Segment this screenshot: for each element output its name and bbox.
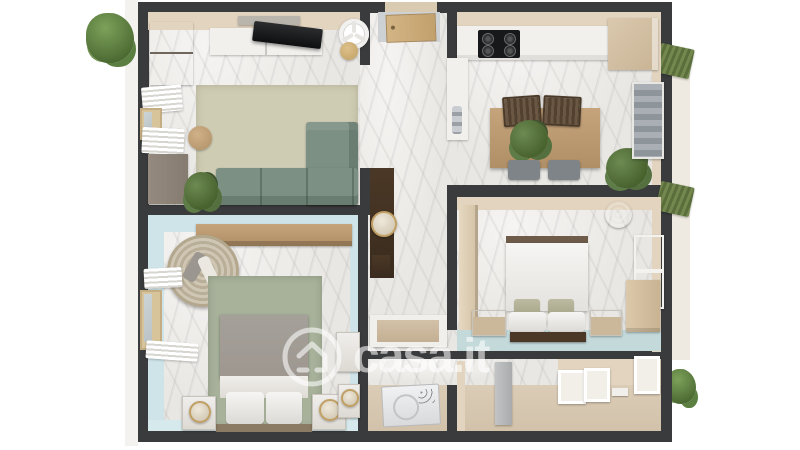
fan-blade [342, 33, 354, 42]
leaning-frame-2 [584, 368, 610, 402]
shrub-top-left [86, 13, 134, 63]
outer-wall-bottom [138, 431, 672, 442]
bed-right-pillow-2 [548, 312, 585, 332]
corridor-partition-face [457, 361, 465, 431]
bedroom-left-dresser [336, 332, 360, 372]
corridor-alcove-partition [495, 362, 512, 425]
living-plant [184, 172, 218, 210]
bed-left-duvet [220, 315, 308, 379]
entry-door [386, 13, 437, 43]
dining-stool-left [508, 160, 540, 180]
table-centerpiece-plant [510, 120, 548, 158]
dining-stool-right [548, 160, 580, 180]
bed-left-pillow-2 [266, 392, 302, 424]
bedroom-right-corner-wardrobe [626, 280, 660, 332]
vanity-mirror [341, 389, 359, 407]
bedroom-right-nightstand-right [590, 310, 622, 336]
round-side-table [188, 126, 212, 150]
burner [504, 33, 516, 45]
burner [482, 33, 494, 45]
woven-pendant [605, 201, 632, 228]
door-handle [391, 26, 395, 30]
bedroom-right-nightstand-left [472, 310, 506, 336]
wall-hall-bedroom-right [447, 188, 457, 330]
bed-right-bench [510, 332, 586, 342]
washing-machine [381, 384, 441, 428]
gold-side-table [340, 42, 358, 60]
window-glass [144, 294, 152, 342]
kitchen-window-shade [632, 82, 664, 159]
burner [504, 45, 516, 57]
bed-left-headboard [216, 424, 312, 432]
leaning-frame-1 [558, 370, 586, 404]
kitchen-corner-cabinet [608, 18, 658, 70]
fan-blade [354, 33, 366, 42]
shower-tray [377, 320, 439, 342]
nightstand-mirror-left [189, 401, 211, 423]
bedroom-left-shutter-lower [145, 340, 198, 362]
burner [482, 45, 494, 57]
bed-left-pillow-1 [226, 392, 264, 424]
washer-panel-dots [418, 389, 435, 404]
living-wardrobe [150, 22, 193, 85]
bathroom-shelf [372, 255, 390, 278]
radiator-shutter-lower [141, 127, 184, 155]
hall-round-mirror [371, 211, 397, 237]
floor-parcel [612, 388, 628, 396]
bedroom-left-shutter-upper [144, 267, 183, 289]
living-cabinet [148, 154, 188, 204]
gas-cooktop [478, 30, 520, 58]
corridor-wall-panel [634, 356, 660, 394]
washer-door [392, 394, 419, 421]
wall-living-bedroom [138, 205, 370, 215]
apartment-plan [138, 2, 672, 442]
shower [370, 315, 447, 347]
fan-blade [352, 21, 356, 33]
faucet [452, 106, 462, 134]
exterior-left-strip [125, 0, 138, 446]
floor-plan-render: casa.it [0, 0, 800, 450]
wall-kitchen-bedroom-right [447, 185, 672, 197]
sofa-seats [216, 168, 358, 205]
bed-right-pillow-1 [509, 312, 546, 332]
dining-chair-top-right [542, 95, 582, 127]
